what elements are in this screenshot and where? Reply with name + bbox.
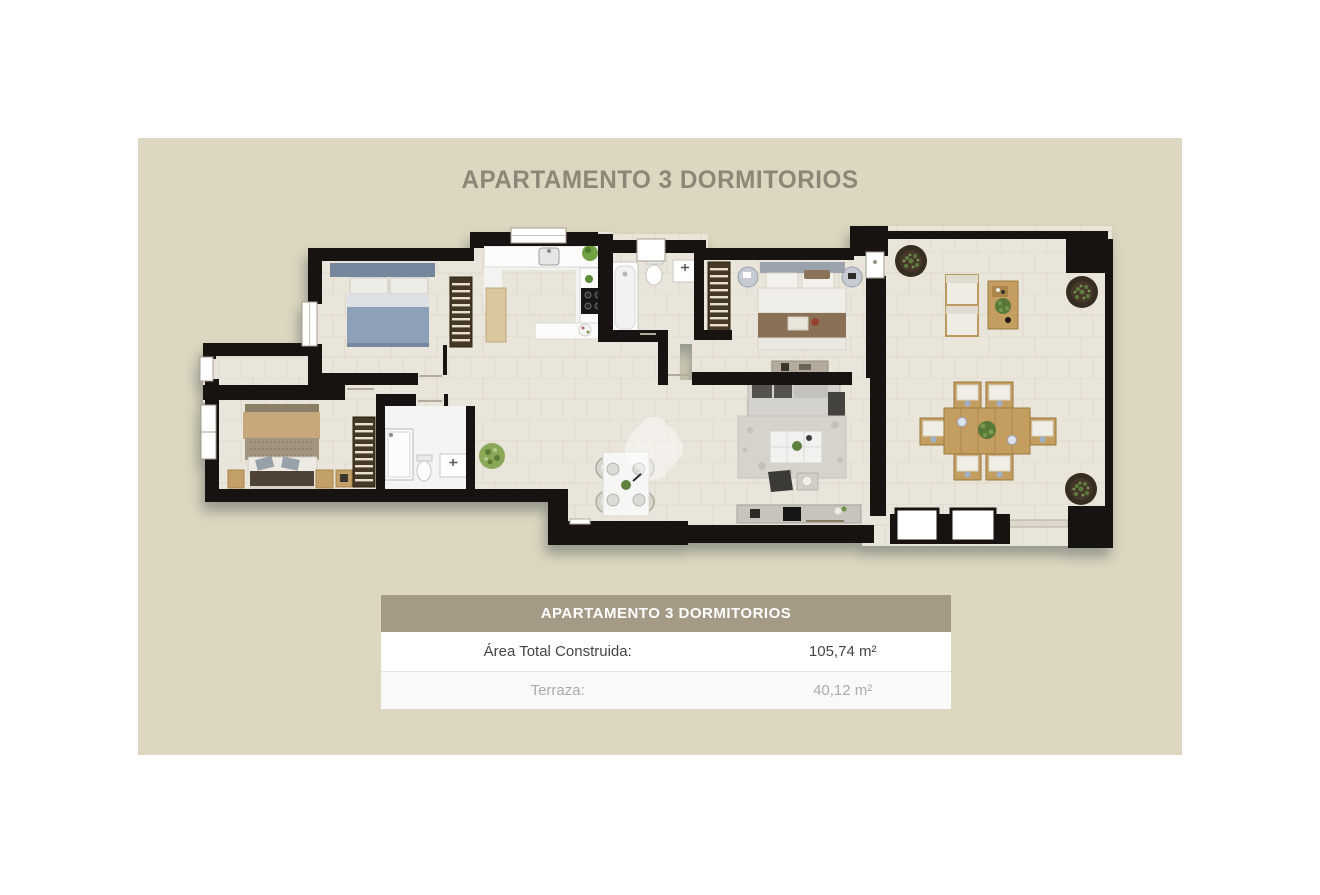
bed-headboard <box>760 262 845 273</box>
tv-icon <box>783 507 801 521</box>
pillow <box>766 273 798 289</box>
shower-icon <box>385 429 413 480</box>
bed-headboard <box>330 263 435 277</box>
window-icon <box>511 228 566 243</box>
bedroom3-furniture <box>228 404 375 489</box>
dish-icon <box>579 324 591 336</box>
outdoor-chair-icon <box>920 418 947 445</box>
wardrobe-icon <box>450 277 472 347</box>
floor-plan <box>195 220 1120 570</box>
screenshot-canvas: APARTAMENTO 3 DORMITORIOS <box>0 0 1320 895</box>
potted-plant-icon <box>1065 473 1097 505</box>
plant-icon <box>995 298 1011 314</box>
plant-icon <box>621 480 631 490</box>
window-icon <box>637 239 665 261</box>
plant-icon <box>582 245 598 261</box>
toilet-icon <box>646 265 662 285</box>
outdoor-chair-icon <box>954 453 981 480</box>
plant-icon <box>585 275 593 283</box>
terrace-door <box>866 252 884 278</box>
terrace-panel <box>896 509 938 541</box>
row-value: 40,12 m² <box>734 682 951 699</box>
brown-bed-icon <box>758 288 846 313</box>
terrace-panel <box>951 509 995 541</box>
potted-plant-icon <box>895 245 927 277</box>
outdoor-chair-icon <box>986 453 1013 480</box>
vase-icon <box>834 507 842 515</box>
row-label: Área Total Construida: <box>381 643 734 660</box>
wardrobe-icon <box>353 417 375 487</box>
pillow <box>390 278 428 294</box>
row-label: Terraza: <box>381 682 734 699</box>
plant-icon <box>479 443 505 469</box>
kitchen-peninsula <box>535 323 605 339</box>
page-title: APARTAMENTO 3 DORMITORIOS <box>154 166 1167 195</box>
row-value: 105,74 m² <box>734 643 951 660</box>
outdoor-chair-icon <box>986 382 1013 409</box>
outdoor-chair-icon <box>954 382 981 409</box>
window-sill <box>570 519 590 524</box>
pouf-icon <box>768 470 793 492</box>
tan-bed-icon <box>243 412 320 439</box>
potted-plant-icon <box>1066 276 1098 308</box>
plant-icon <box>978 421 996 439</box>
kitchen-island-icon <box>486 288 506 342</box>
outdoor-chair-icon <box>1029 418 1056 445</box>
table-row: Área Total Construida: 105,74 m² <box>381 632 951 672</box>
window-icon <box>200 357 213 381</box>
blue-bed-icon <box>347 307 429 345</box>
side-table-icon <box>316 470 333 488</box>
terrace-parapet <box>1008 520 1068 527</box>
content-panel: APARTAMENTO 3 DORMITORIOS <box>138 138 1182 755</box>
pillow <box>350 278 388 294</box>
info-table: APARTAMENTO 3 DORMITORIOS Área Total Con… <box>381 595 951 709</box>
wardrobe-icon <box>708 262 730 332</box>
window-icon <box>302 302 317 346</box>
table-row: Terraza: 40,12 m² <box>381 672 951 709</box>
toilet-icon <box>417 461 431 481</box>
info-table-header: APARTAMENTO 3 DORMITORIOS <box>381 595 951 632</box>
plant-icon <box>792 441 802 451</box>
window-icon <box>201 405 216 459</box>
side-table-icon <box>228 470 244 488</box>
